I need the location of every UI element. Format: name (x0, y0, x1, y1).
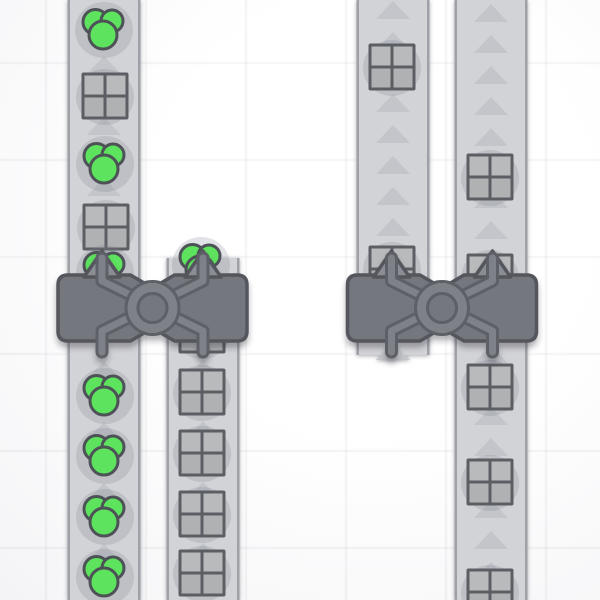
item-green-circles (76, 368, 134, 424)
item-green-circles (76, 489, 134, 545)
scene-canvas (0, 0, 600, 600)
item-crate (461, 565, 519, 600)
item-crate (173, 487, 231, 543)
item-crate (173, 365, 231, 421)
item-crate (461, 455, 519, 511)
item-crate (76, 69, 134, 125)
item-crate (461, 360, 519, 416)
item-crate (363, 40, 421, 96)
item-green-circles (76, 428, 134, 484)
item-crate (173, 426, 231, 482)
game-viewport (0, 0, 600, 600)
item-green-circles (75, 2, 133, 58)
item-green-circles (76, 136, 134, 192)
item-crate (173, 546, 231, 600)
item-crate (461, 150, 519, 206)
